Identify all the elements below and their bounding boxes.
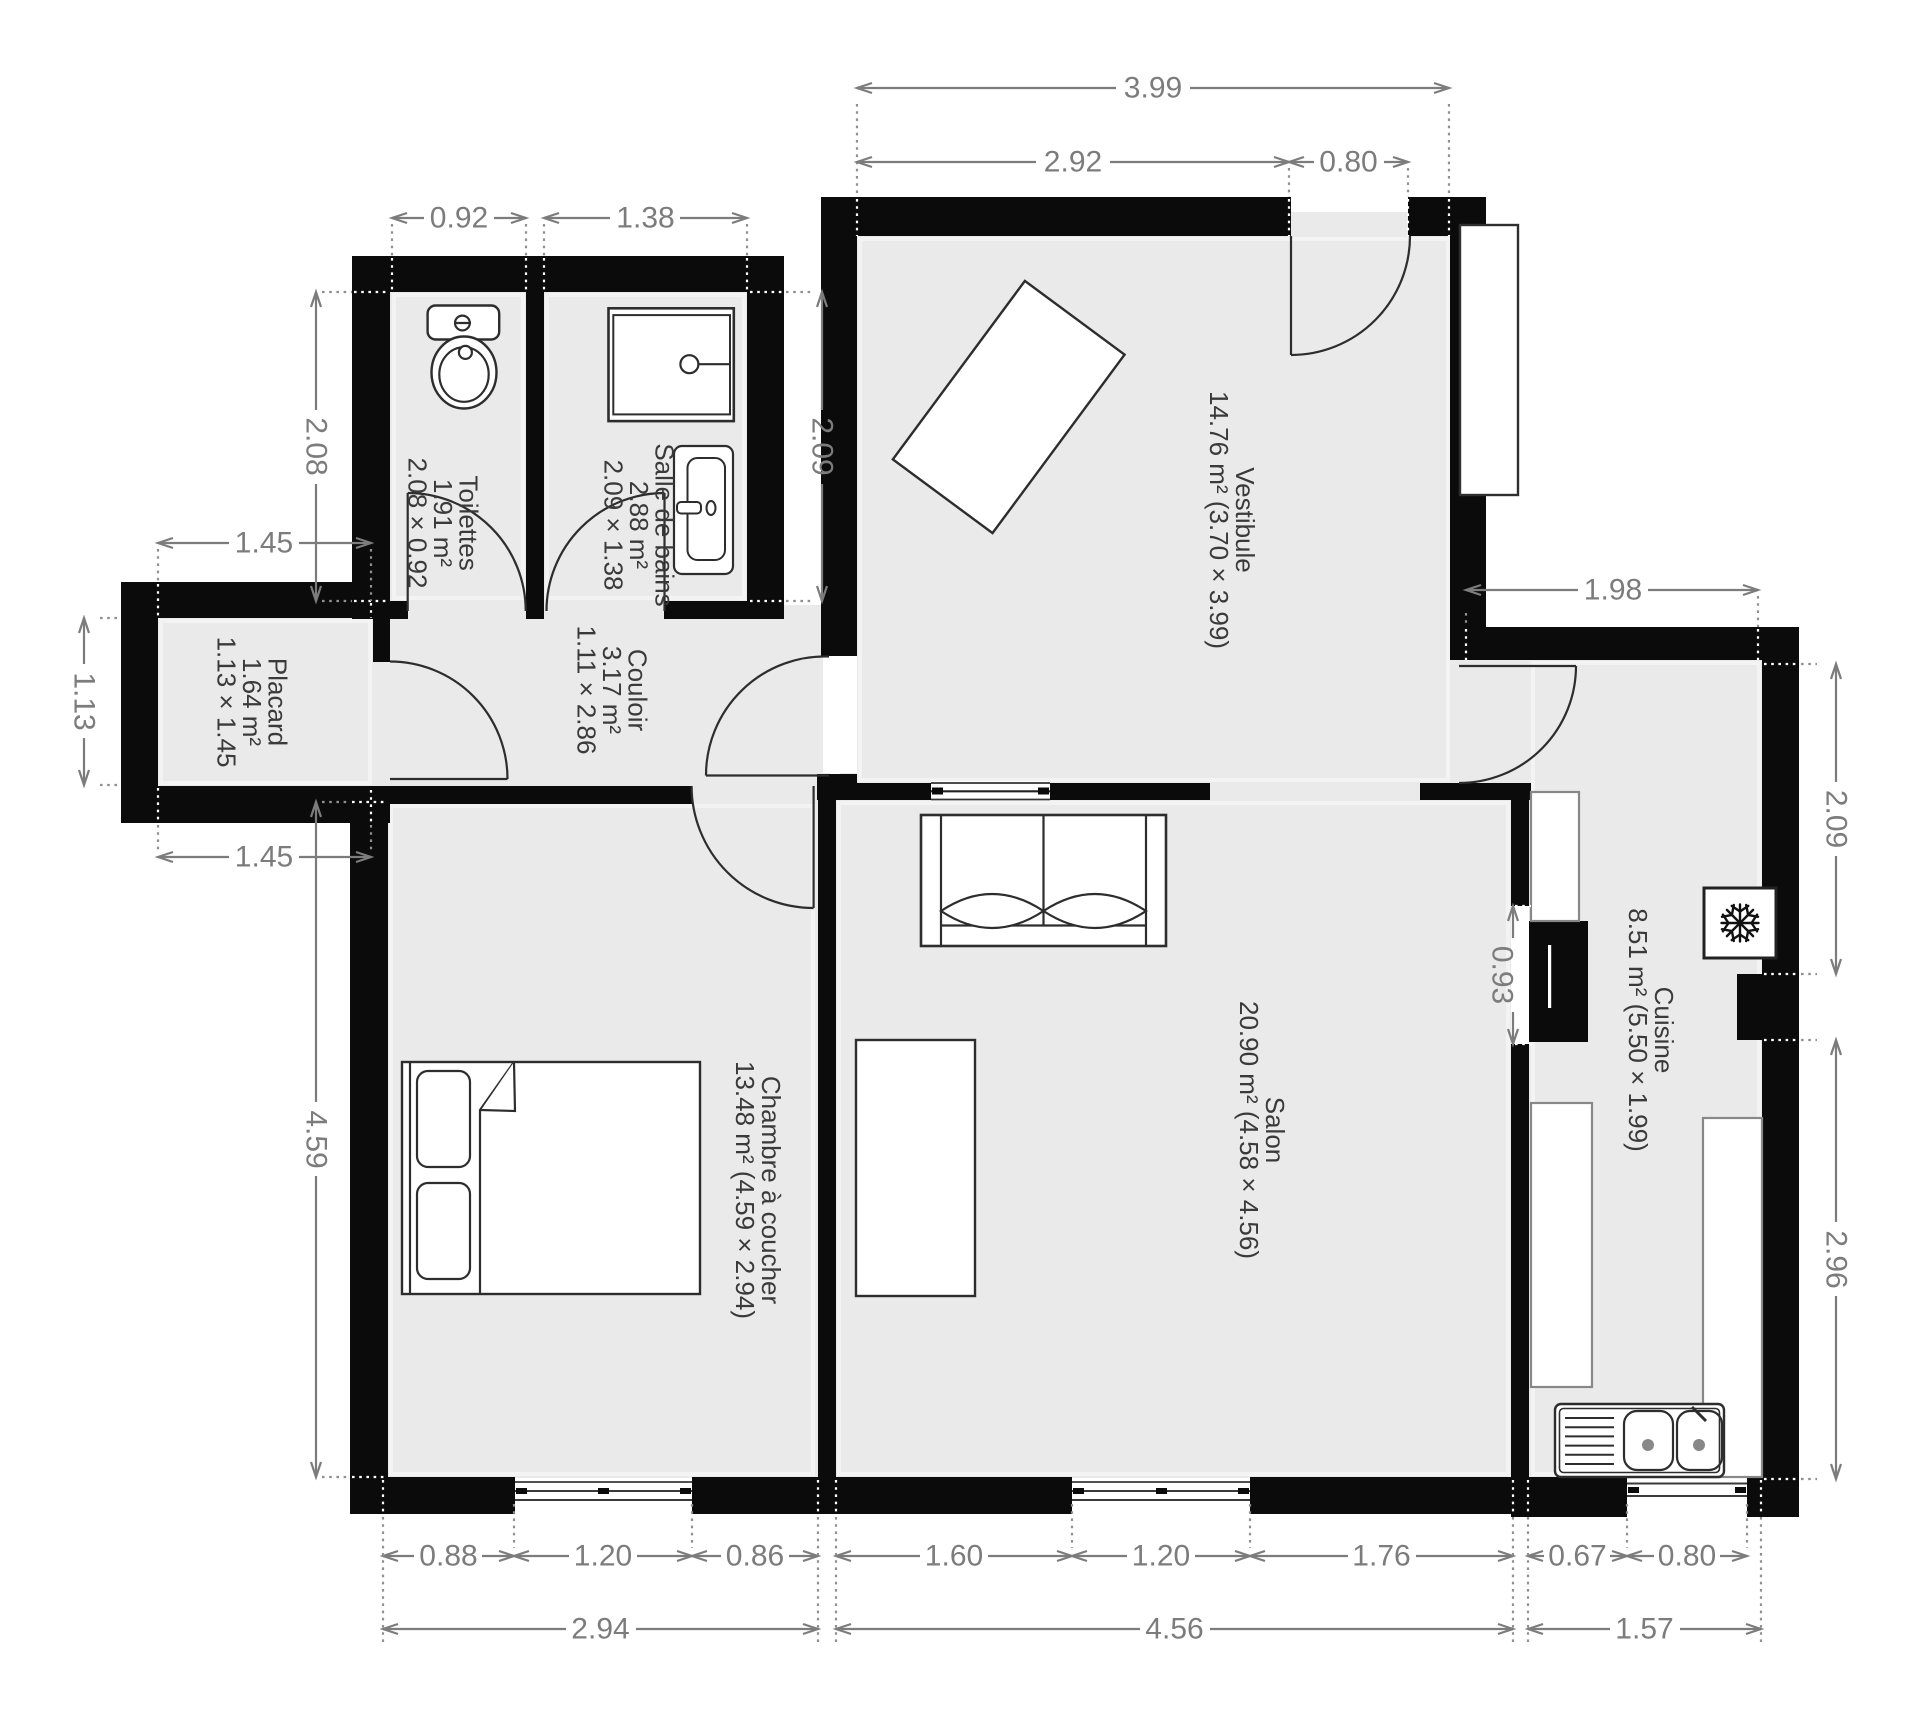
svg-text:1.13 × 1.45: 1.13 × 1.45 bbox=[212, 637, 242, 768]
svg-text:1.76: 1.76 bbox=[1352, 1540, 1410, 1573]
svg-text:1.20: 1.20 bbox=[1132, 1540, 1190, 1573]
svg-text:2.92: 2.92 bbox=[1044, 146, 1102, 179]
svg-text:0.88: 0.88 bbox=[419, 1540, 477, 1573]
svg-text:0.92: 0.92 bbox=[430, 202, 488, 235]
svg-text:0.86: 0.86 bbox=[726, 1540, 784, 1573]
svg-text:13.48 m² (4.59 × 2.94): 13.48 m² (4.59 × 2.94) bbox=[730, 1061, 760, 1319]
svg-text:1.13: 1.13 bbox=[68, 672, 101, 730]
svg-text:4.59: 4.59 bbox=[300, 1110, 333, 1168]
svg-text:20.90 m² (4.58 × 4.56): 20.90 m² (4.58 × 4.56) bbox=[1234, 1001, 1264, 1259]
svg-text:1.20: 1.20 bbox=[574, 1540, 632, 1573]
svg-text:1.57: 1.57 bbox=[1615, 1613, 1673, 1646]
svg-text:1.45: 1.45 bbox=[235, 527, 293, 560]
svg-text:0.80: 0.80 bbox=[1658, 1540, 1716, 1573]
svg-text:2.96: 2.96 bbox=[1820, 1230, 1853, 1288]
svg-text:2.08 × 0.92: 2.08 × 0.92 bbox=[403, 458, 433, 589]
svg-text:1.45: 1.45 bbox=[235, 841, 293, 874]
svg-text:2.09: 2.09 bbox=[1820, 790, 1853, 848]
svg-text:1.11 × 2.86: 1.11 × 2.86 bbox=[572, 626, 602, 755]
svg-text:0.67: 0.67 bbox=[1548, 1540, 1606, 1573]
svg-text:3.99: 3.99 bbox=[1124, 72, 1182, 105]
svg-text:2.08: 2.08 bbox=[300, 417, 333, 475]
svg-text:1.60: 1.60 bbox=[925, 1540, 983, 1573]
svg-text:8.51 m² (5.50 × 1.99): 8.51 m² (5.50 × 1.99) bbox=[1623, 908, 1653, 1152]
svg-text:0.80: 0.80 bbox=[1319, 146, 1377, 179]
svg-text:2.09 × 1.38: 2.09 × 1.38 bbox=[599, 460, 629, 591]
svg-text:14.76 m² (3.70 × 3.99): 14.76 m² (3.70 × 3.99) bbox=[1204, 391, 1234, 649]
svg-text:4.56: 4.56 bbox=[1145, 1613, 1203, 1646]
svg-text:1.38: 1.38 bbox=[616, 202, 674, 235]
svg-text:2.09: 2.09 bbox=[806, 417, 839, 475]
svg-text:1.98: 1.98 bbox=[1584, 574, 1642, 607]
svg-text:0.93: 0.93 bbox=[1486, 946, 1519, 1004]
svg-text:2.94: 2.94 bbox=[571, 1613, 629, 1646]
